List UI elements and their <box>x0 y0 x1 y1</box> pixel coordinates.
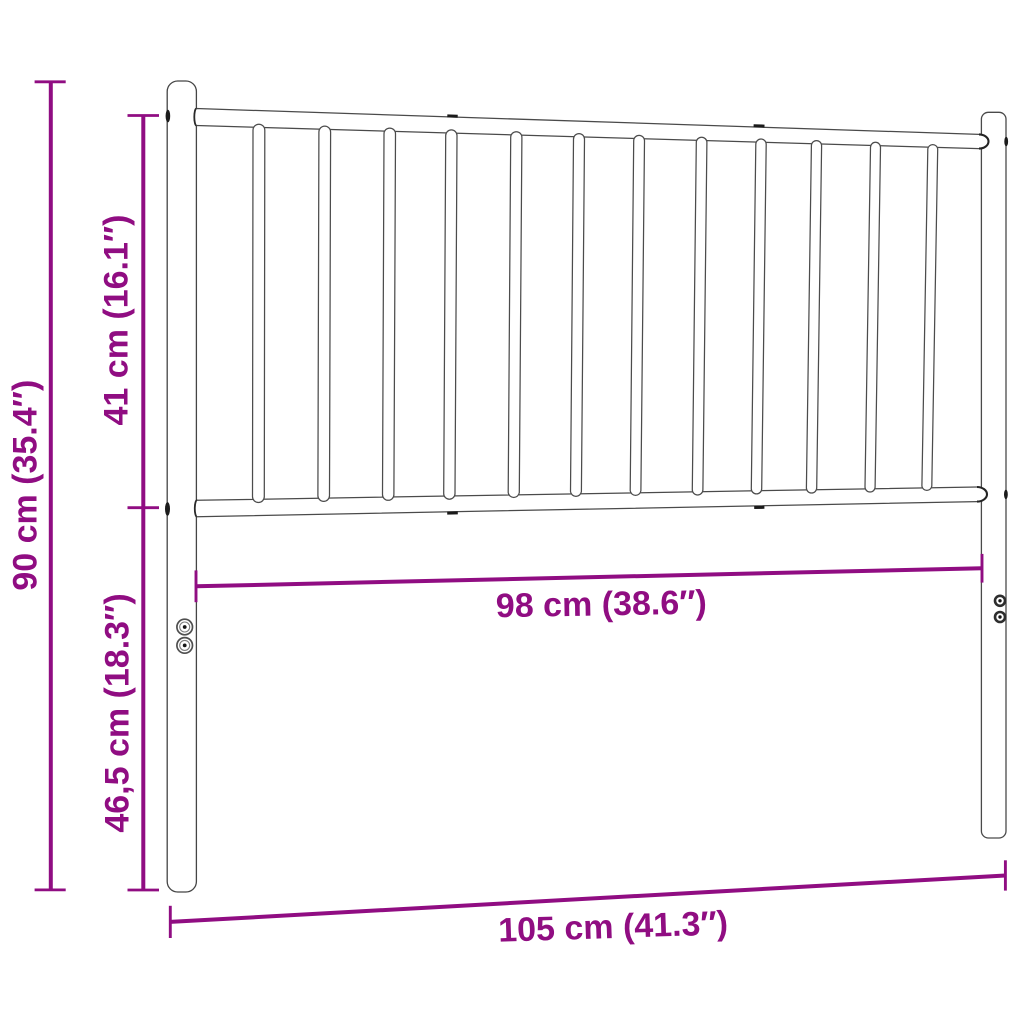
svg-text:41 cm (16.1″): 41 cm (16.1″) <box>97 215 135 426</box>
svg-text:98 cm (38.6″): 98 cm (38.6″) <box>496 584 708 626</box>
svg-text:46,5 cm (18.3″): 46,5 cm (18.3″) <box>98 593 136 832</box>
svg-text:90 cm (35.4″): 90 cm (35.4″) <box>7 380 45 591</box>
svg-text:105 cm (41.3″): 105 cm (41.3″) <box>498 904 729 950</box>
